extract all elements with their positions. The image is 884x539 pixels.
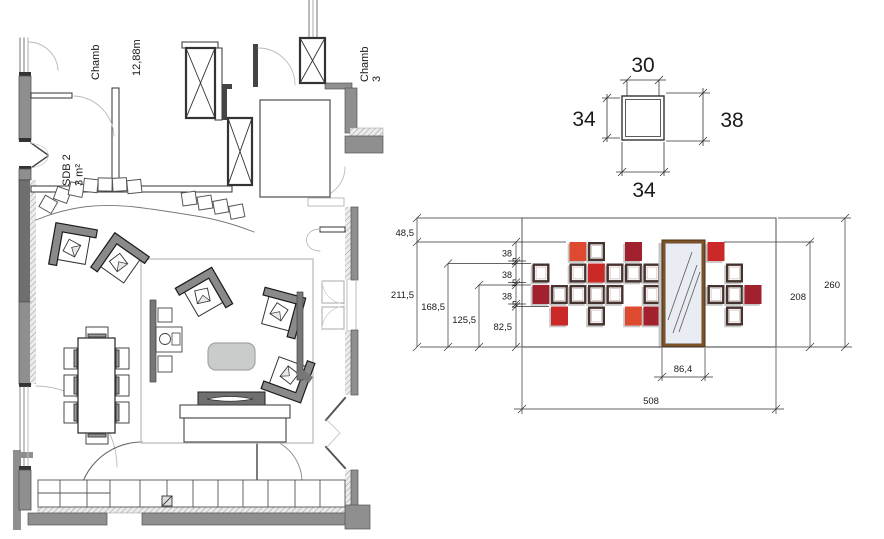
wall-frame-I3 bbox=[724, 286, 742, 306]
wall-frame-F4 bbox=[623, 307, 642, 328]
detail-dim-right: 38 bbox=[720, 109, 743, 132]
architectural-drawing: Chamb 12,88m SDB 2 3 m² Chamb 3 30 bbox=[0, 0, 884, 539]
detail-dim-bottom: 34 bbox=[632, 179, 656, 202]
wall-frame-F1 bbox=[623, 242, 642, 263]
shutter-window bbox=[326, 398, 345, 468]
door-swing-arc bbox=[257, 437, 302, 482]
floor-plan: Chamb 12,88m SDB 2 3 m² Chamb 3 bbox=[13, 0, 383, 530]
wall-frame-C1 bbox=[568, 242, 587, 263]
wall-frame-G4 bbox=[642, 307, 661, 328]
dim-gap-5: 5 bbox=[512, 300, 517, 310]
wall-segment bbox=[13, 452, 33, 458]
wall-frame-H3 bbox=[706, 286, 724, 306]
frame-outer bbox=[622, 96, 664, 140]
frame-detail: 30 34 38 34 bbox=[572, 54, 743, 202]
dim-211-5: 211,5 bbox=[391, 290, 414, 301]
wall-frame-I2 bbox=[724, 265, 742, 285]
detail-dim-left: 34 bbox=[572, 108, 596, 131]
room-label-bedroom-left: Chamb bbox=[90, 45, 102, 80]
mirror-glass bbox=[666, 244, 702, 344]
bathroom-area: 3 m² bbox=[74, 164, 86, 186]
window-swing-arc bbox=[28, 42, 58, 70]
wall-frame-B3 bbox=[549, 286, 567, 306]
wall-frame-I4 bbox=[724, 308, 742, 328]
left-exterior-wall bbox=[13, 38, 58, 530]
wall-frame-B4 bbox=[549, 307, 568, 328]
dim-row-38: 38 bbox=[502, 249, 512, 259]
wardrobe-panel bbox=[197, 195, 213, 210]
wall-frame-G2 bbox=[642, 265, 660, 285]
double-swing-door bbox=[307, 229, 321, 251]
wardrobe-panel bbox=[112, 178, 127, 192]
wall-frame-A2 bbox=[531, 265, 549, 285]
dim-48-5: 48,5 bbox=[396, 228, 415, 239]
dim-260: 260 bbox=[824, 280, 840, 291]
wall-frame-C3 bbox=[568, 286, 586, 306]
wall-frame-H1 bbox=[706, 242, 725, 263]
wall-frame-A3 bbox=[531, 285, 550, 306]
dim-168-5: 168,5 bbox=[421, 302, 445, 313]
bed bbox=[260, 100, 330, 197]
wall-frame-E3 bbox=[605, 286, 623, 306]
closet-box bbox=[300, 38, 325, 83]
floor-outlet bbox=[162, 496, 172, 506]
wardrobe-panel bbox=[213, 199, 229, 214]
dim-82-5: 82,5 bbox=[494, 322, 513, 333]
wardrobe-panel bbox=[98, 178, 112, 191]
closet-box bbox=[186, 48, 215, 118]
coffee-table bbox=[208, 343, 255, 370]
bottom-counter bbox=[38, 480, 345, 507]
wall-frame-D2 bbox=[586, 264, 605, 285]
detail-dim-top: 30 bbox=[631, 54, 654, 77]
door-leaf bbox=[253, 44, 258, 87]
dim-row-38: 38 bbox=[502, 292, 512, 302]
dining-set bbox=[64, 327, 129, 444]
dim-208: 208 bbox=[790, 292, 806, 303]
dining-table bbox=[78, 338, 115, 433]
wall-frame-C2 bbox=[568, 265, 586, 285]
wall bbox=[320, 227, 345, 232]
bedroom-right-number: 3 bbox=[371, 76, 383, 82]
wardrobe-panel bbox=[127, 179, 142, 193]
door-swing-arc bbox=[74, 96, 114, 136]
wall-frame-D3 bbox=[586, 286, 604, 306]
french-doors bbox=[322, 280, 356, 330]
dim-gap-5: 5 bbox=[512, 278, 517, 288]
bottom-exterior-wall bbox=[28, 507, 347, 525]
wall bbox=[31, 93, 72, 98]
door-swing-arc bbox=[258, 48, 295, 85]
wardrobe-panel bbox=[181, 191, 197, 206]
tv-console bbox=[180, 392, 290, 442]
dim-125-5: 125,5 bbox=[452, 315, 476, 326]
room-area-bedroom-left: 12,88m bbox=[131, 39, 143, 76]
wall-frame-D1 bbox=[586, 243, 604, 263]
armchair bbox=[49, 223, 98, 272]
side-console-left bbox=[150, 300, 182, 382]
room-label-bathroom: SDB 2 3 m² bbox=[61, 151, 86, 186]
wardrobe-panel bbox=[229, 204, 245, 219]
bathroom-door bbox=[31, 143, 48, 168]
drawing-svg: Chamb 12,88m SDB 2 3 m² Chamb 3 30 bbox=[0, 0, 884, 539]
wall-frame-F2 bbox=[623, 265, 641, 285]
bathroom-name: SDB 2 bbox=[61, 154, 73, 186]
wall-elevation: 48,5 211,5 168,5 125,5 82,5 38 5 38 5 38… bbox=[391, 214, 852, 414]
wall-frame-G3 bbox=[642, 286, 660, 306]
armchair bbox=[175, 267, 232, 324]
mirror bbox=[659, 240, 706, 348]
door-jamb bbox=[222, 84, 227, 120]
dim-row-38: 38 bbox=[502, 270, 512, 280]
room-label-bedroom-right: Chamb 3 bbox=[359, 43, 383, 82]
wall-frame-D4 bbox=[586, 308, 604, 328]
wall-frame-E2 bbox=[605, 265, 623, 285]
wall-frame-J3 bbox=[743, 285, 762, 306]
dim-86-4: 86,4 bbox=[674, 364, 693, 375]
wall bbox=[112, 88, 119, 188]
wall-jut bbox=[345, 136, 383, 153]
closet-box bbox=[228, 118, 252, 185]
dim-gap-5: 5 bbox=[512, 257, 517, 267]
bedroom-right-name: Chamb bbox=[359, 47, 371, 82]
dim-508: 508 bbox=[643, 396, 659, 407]
